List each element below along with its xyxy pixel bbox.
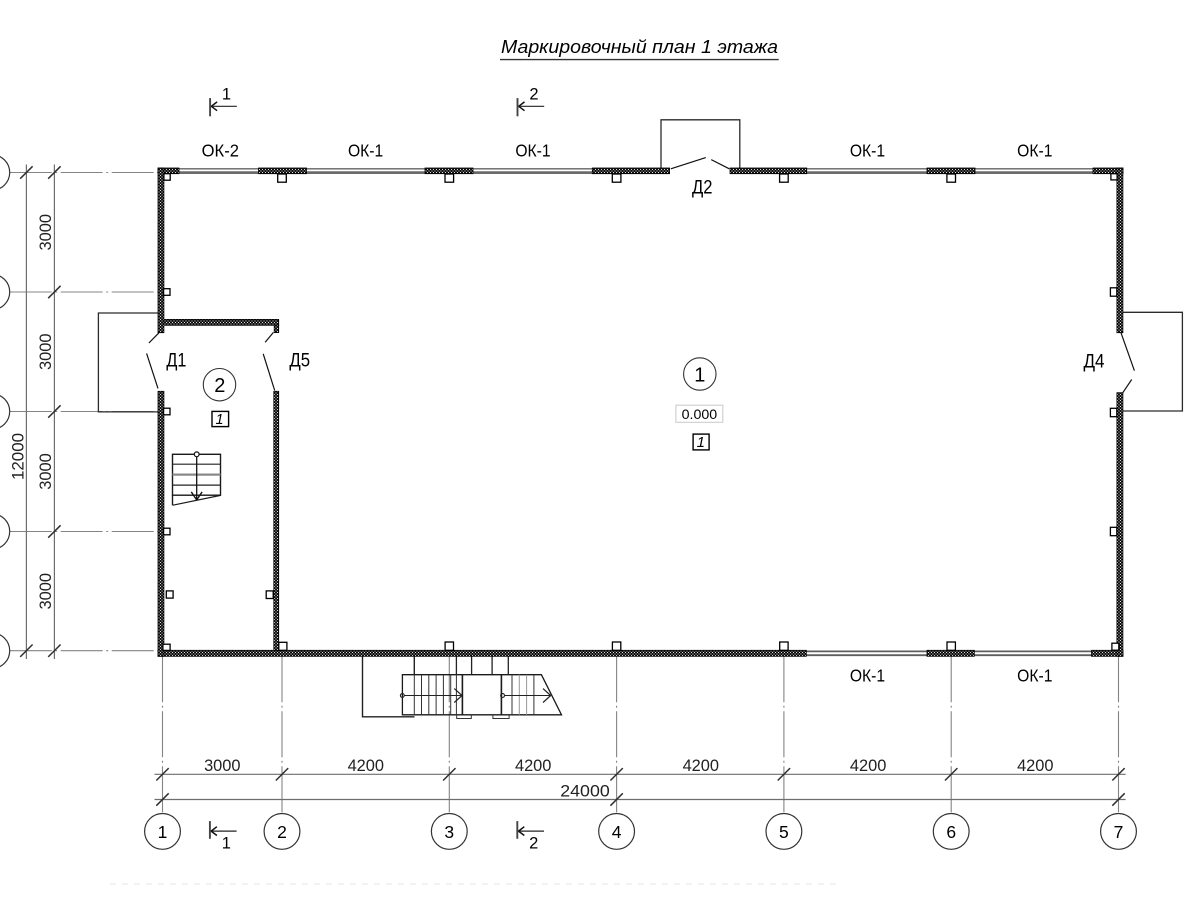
svg-text:5: 5	[779, 822, 789, 842]
svg-text:ОК-1: ОК-1	[1017, 140, 1052, 160]
svg-text:ОК-1: ОК-1	[850, 140, 885, 160]
svg-text:2: 2	[214, 375, 225, 397]
svg-text:6: 6	[946, 822, 956, 842]
svg-text:4200: 4200	[1017, 757, 1053, 775]
svg-text:1: 1	[216, 412, 224, 428]
svg-text:ОК-1: ОК-1	[1017, 666, 1052, 686]
svg-text:Д1: Д1	[166, 351, 186, 372]
svg-text:ОК-1: ОК-1	[515, 140, 550, 160]
svg-text:3000: 3000	[37, 573, 55, 609]
svg-text:Д4: Д4	[1084, 352, 1105, 373]
svg-text:0.000: 0.000	[682, 407, 718, 423]
svg-text:ОК-1: ОК-1	[850, 666, 885, 686]
svg-text:4: 4	[612, 822, 622, 842]
svg-text:1: 1	[222, 86, 231, 104]
svg-text:2: 2	[529, 835, 538, 853]
svg-text:3000: 3000	[37, 214, 55, 250]
svg-text:2: 2	[277, 822, 287, 842]
svg-text:Д2: Д2	[692, 178, 713, 199]
svg-text:ОК-2: ОК-2	[202, 140, 239, 160]
svg-text:4200: 4200	[515, 757, 551, 775]
svg-text:1: 1	[222, 835, 231, 853]
svg-text:3000: 3000	[37, 453, 55, 489]
svg-text:12000: 12000	[9, 433, 28, 480]
svg-text:Маркировочный план 1 этажа: Маркировочный план 1 этажа	[501, 36, 778, 57]
svg-text:1: 1	[697, 434, 705, 451]
svg-text:1: 1	[694, 364, 705, 386]
svg-text:Д5: Д5	[289, 351, 310, 372]
svg-text:3000: 3000	[37, 334, 55, 370]
svg-text:1: 1	[158, 822, 168, 842]
svg-text:3: 3	[444, 822, 454, 842]
svg-text:24000: 24000	[560, 781, 610, 800]
svg-text:7: 7	[1114, 822, 1124, 842]
svg-text:4200: 4200	[348, 757, 384, 775]
svg-text:3000: 3000	[204, 757, 240, 775]
svg-text:4200: 4200	[850, 757, 886, 775]
svg-text:2: 2	[529, 86, 538, 104]
svg-text:ОК-1: ОК-1	[348, 140, 383, 160]
svg-text:4200: 4200	[683, 757, 719, 775]
